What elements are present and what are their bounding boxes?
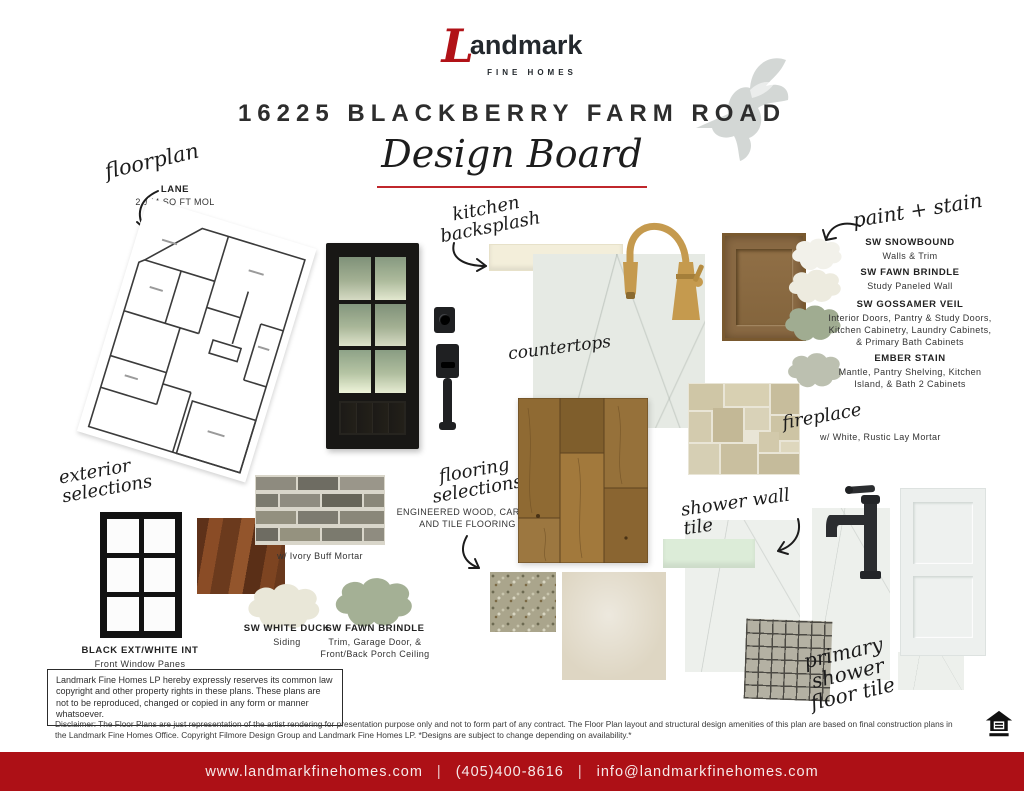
paint-item-fawn-brindle: SW FAWN BRINDLEStudy Paneled Wall <box>830 266 990 292</box>
interior-door-sample <box>900 488 986 656</box>
footer-phone: (405)400-8616 <box>456 764 564 780</box>
gold-kitchen-faucet <box>608 202 708 322</box>
footer-website: www.landmarkfinehomes.com <box>205 764 423 780</box>
wood-flooring-swatch <box>518 398 648 563</box>
disclaimer-text: Disclaimer: The Floor Plans are just rep… <box>55 719 963 741</box>
paint-stain-label: paint + stain <box>851 190 984 231</box>
door-glass-lites <box>339 257 406 393</box>
deadbolt-hardware <box>434 307 455 333</box>
page-title: 16225 BLACKBERRY FARM ROAD <box>0 100 1024 128</box>
footer-contact-bar: www.landmarkfinehomes.com | (405)400-861… <box>0 752 1024 791</box>
handleset-grip-hardware <box>443 378 452 428</box>
fireplace-desc: w/ White, Rustic Lay Mortar <box>820 431 970 443</box>
door-bottom-panel <box>339 401 406 435</box>
floorplan-drawing <box>75 198 316 488</box>
handleset-plate-hardware <box>436 344 459 378</box>
kitchen-backsplash-label: kitchen backsplash <box>435 191 540 247</box>
flooring-arrow <box>455 532 497 574</box>
design-board-page: Landmark FINE HOMES 16225 BLACKBERRY FAR… <box>0 0 1024 791</box>
beige-floor-tile-swatch <box>562 572 666 680</box>
logo-wordmark: andmark <box>470 30 583 60</box>
flooring-selections-label: flooring selections <box>418 453 535 510</box>
paint-item-ember-stain: EMBER STAINMantle, Pantry Shelving, Kitc… <box>830 352 990 390</box>
exterior-selections-label: exterior selections <box>58 451 173 507</box>
window-sample-photo <box>100 512 182 638</box>
black-bath-faucet <box>820 485 890 585</box>
title-underline <box>377 186 647 188</box>
footer-separator: | <box>578 764 583 780</box>
footer-separator: | <box>437 764 442 780</box>
footer-email: info@landmarkfinehomes.com <box>597 764 819 780</box>
paint-item-snowbound: SW SNOWBOUNDWalls & Trim <box>830 236 990 262</box>
equal-housing-opportunity-icon <box>985 709 1013 739</box>
brick-swatch <box>255 475 385 545</box>
shower-wall-tile-arrow <box>758 514 804 556</box>
brick-mortar-label: w/ Ivory Buff Mortar <box>255 550 385 562</box>
copyright-box: Landmark Fine Homes LP hereby expressly … <box>47 669 343 726</box>
front-door-photo <box>326 243 419 449</box>
paint-item-gossamer-veil: SW GOSSAMER VEILInterior Doors, Pantry &… <box>826 298 994 348</box>
landmark-logo: Landmark FINE HOMES <box>0 26 1024 80</box>
window-sample-label: BLACK EXT/WHITE INTFront Window Panes <box>80 644 200 670</box>
shower-wall-tile-swatch <box>663 539 755 568</box>
paint-item-fawn-brindle-ext: SW FAWN BRINDLETrim, Garage Door, & Fron… <box>305 622 445 660</box>
carpet-swatch <box>490 572 556 632</box>
